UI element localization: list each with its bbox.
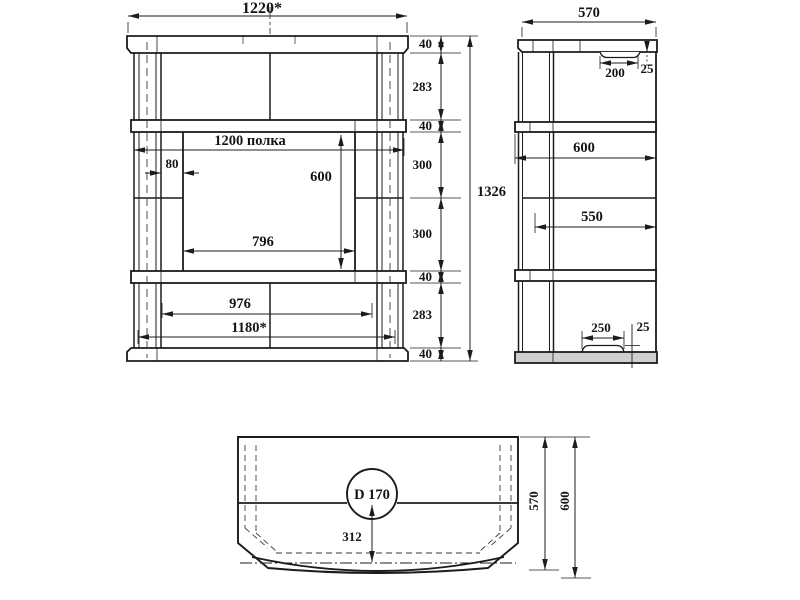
dim-label-side-shelf-depth: 600 — [573, 140, 595, 156]
front-top-panel — [127, 36, 408, 53]
dim-label-front-bottom-inner: 976 — [229, 296, 251, 312]
svg-text:283: 283 — [413, 307, 433, 322]
dim-label-plan-depth-outer: 600 — [557, 491, 572, 511]
side-shelf-band-upper — [515, 122, 656, 132]
side-dimensions — [515, 22, 656, 368]
technical-drawing: 1220* 1200 полка 80 600 796 976 1180* 40… — [0, 0, 800, 600]
svg-text:40: 40 — [419, 118, 432, 133]
dim-label-side-recess-depth: 25 — [641, 61, 655, 76]
front-view: 1220* 1200 полка 80 600 796 976 1180* 40… — [127, 0, 506, 361]
side-structure — [515, 40, 657, 363]
dim-label-front-opening-width: 796 — [252, 234, 274, 250]
side-top-panel — [518, 40, 657, 52]
front-bottom-panel — [127, 348, 408, 361]
side-foot-pad — [582, 346, 624, 353]
side-view: 570 200 25 600 550 250 25 — [515, 5, 657, 368]
front-shelf-band-upper — [131, 120, 406, 132]
dim-label-front-total-height: 1326 — [477, 184, 506, 200]
dim-side-depth — [522, 22, 656, 37]
dim-label-front-opening-height: 600 — [310, 169, 332, 185]
plan-view: D 170 312 570 600 — [238, 437, 591, 578]
dim-labels-height-chain: 40 283 40 300 300 40 283 40 — [413, 36, 433, 361]
dim-label-side-recess-width: 200 — [605, 65, 625, 80]
dim-label-side-pad-width: 250 — [591, 320, 611, 335]
svg-text:300: 300 — [413, 157, 433, 172]
front-left-post — [134, 53, 161, 348]
dim-front-top-width — [128, 16, 407, 33]
side-bottom-panel — [515, 352, 657, 363]
svg-text:283: 283 — [413, 79, 433, 94]
dim-label-plan-depth-inner: 570 — [526, 491, 541, 511]
dim-label-front-shelf-width: 1200 полка — [214, 133, 286, 149]
svg-text:40: 40 — [419, 346, 432, 361]
svg-text:40: 40 — [419, 36, 432, 51]
dim-label-plan-hole: D 170 — [354, 487, 390, 503]
dim-label-front-post-inset: 80 — [166, 156, 179, 171]
side-top-recess — [600, 52, 640, 58]
side-shelf-band-lower — [515, 270, 656, 281]
dim-label-side-clear-depth: 550 — [581, 209, 603, 225]
dim-label-side-pad-height: 25 — [637, 319, 651, 334]
dim-label-plan-hole-offset: 312 — [342, 529, 362, 544]
side-front-edge — [519, 52, 554, 352]
dim-label-side-depth: 570 — [578, 5, 600, 21]
svg-text:300: 300 — [413, 226, 433, 241]
plan-structure — [238, 437, 518, 573]
blueprint-page: 1220* 1200 полка 80 600 796 976 1180* 40… — [0, 0, 800, 600]
dim-front-bottom-inner — [162, 303, 372, 318]
dim-label-front-bottom-width: 1180* — [231, 320, 266, 336]
front-shelf-band-lower — [131, 271, 406, 283]
front-structure — [127, 7, 408, 361]
svg-text:40: 40 — [419, 269, 432, 284]
dim-label-front-top-width: 1220* — [242, 0, 282, 17]
